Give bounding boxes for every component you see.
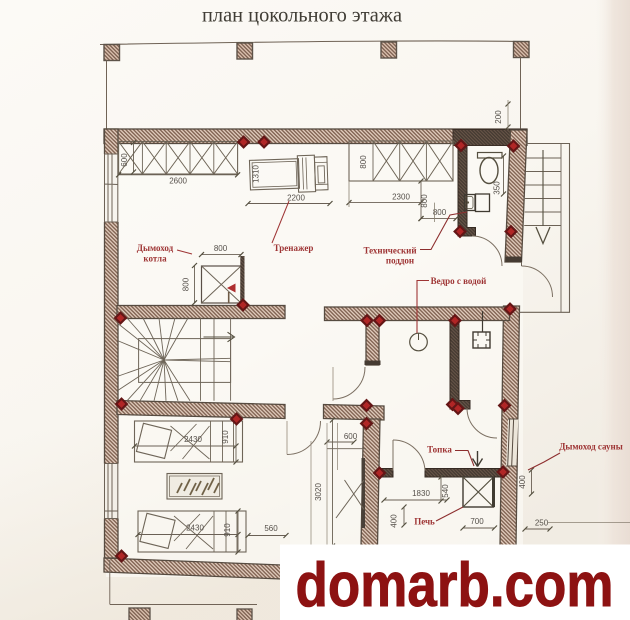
svg-text:350: 350 <box>493 181 502 195</box>
svg-text:400: 400 <box>518 475 527 489</box>
svg-text:700: 700 <box>470 517 484 526</box>
svg-text:910: 910 <box>223 523 232 537</box>
svg-text:2600: 2600 <box>169 177 187 186</box>
svg-text:600: 600 <box>120 153 129 167</box>
svg-text:Топка: Топка <box>427 445 452 455</box>
svg-text:200: 200 <box>494 110 503 124</box>
svg-text:600: 600 <box>344 432 358 441</box>
svg-text:910: 910 <box>221 430 230 444</box>
svg-text:Тренажер: Тренажер <box>274 243 314 253</box>
svg-text:2200: 2200 <box>287 194 305 203</box>
svg-text:план цокольного этажа: план цокольного этажа <box>202 3 403 27</box>
svg-text:2430: 2430 <box>186 524 204 533</box>
svg-text:400: 400 <box>390 514 399 528</box>
svg-text:2300: 2300 <box>392 193 410 202</box>
svg-text:Дымоход: Дымоход <box>137 243 174 253</box>
svg-text:Печь: Печь <box>414 517 435 527</box>
svg-text:1830: 1830 <box>412 489 430 498</box>
svg-text:800: 800 <box>433 208 447 217</box>
svg-text:Ведро с водой: Ведро с водой <box>431 276 487 286</box>
svg-text:1310: 1310 <box>252 165 261 183</box>
svg-text:3020: 3020 <box>314 483 323 501</box>
svg-text:800: 800 <box>359 155 368 169</box>
svg-text:250: 250 <box>535 519 549 528</box>
svg-text:560: 560 <box>264 524 278 533</box>
svg-text:поддон: поддон <box>386 256 414 266</box>
svg-text:Дымоход сауны: Дымоход сауны <box>559 442 623 452</box>
svg-text:Технический: Технический <box>363 246 416 256</box>
svg-text:2430: 2430 <box>184 435 202 444</box>
svg-text:domarb.com: domarb.com <box>296 550 614 620</box>
svg-text:800: 800 <box>214 244 228 253</box>
svg-text:800: 800 <box>420 194 429 208</box>
svg-text:котла: котла <box>143 254 167 264</box>
svg-text:540: 540 <box>441 484 450 498</box>
svg-text:800: 800 <box>182 277 191 291</box>
